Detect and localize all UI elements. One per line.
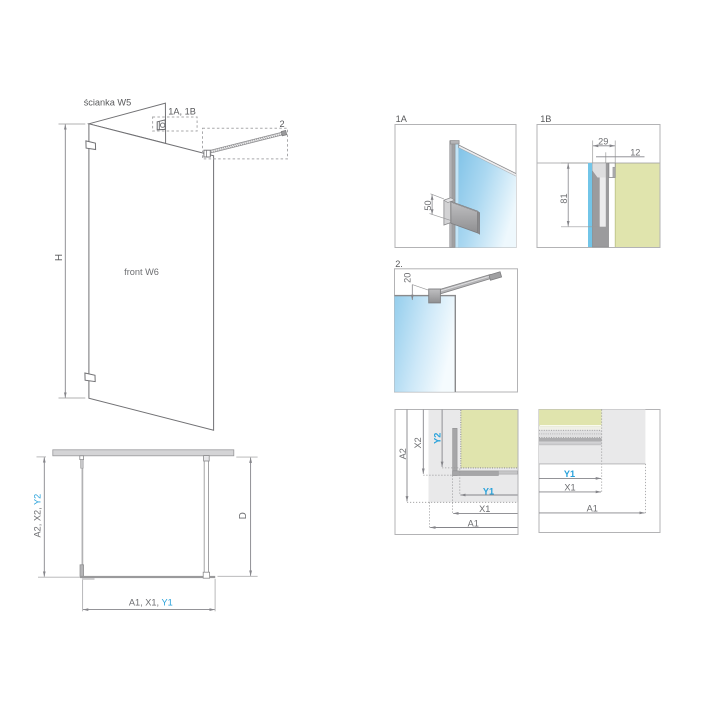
svg-text:X1: X1 [479, 504, 490, 514]
svg-text:1B: 1B [540, 114, 551, 124]
svg-text:ścianka W5: ścianka W5 [84, 98, 132, 108]
svg-text:Y2: Y2 [432, 433, 442, 444]
svg-text:A1: A1 [468, 518, 479, 528]
svg-text:Y1: Y1 [483, 486, 494, 496]
svg-text:2: 2 [280, 119, 285, 129]
svg-text:81: 81 [559, 193, 569, 203]
svg-text:A2, X2, Y2: A2, X2, Y2 [33, 494, 43, 538]
svg-text:X1: X1 [564, 483, 575, 493]
svg-text:50: 50 [423, 200, 433, 210]
svg-text:H: H [54, 254, 65, 261]
svg-text:Y1: Y1 [564, 469, 575, 479]
svg-text:D: D [238, 512, 249, 519]
svg-text:1A, 1B: 1A, 1B [168, 106, 196, 116]
svg-text:12: 12 [630, 147, 640, 157]
svg-text:20: 20 [403, 273, 413, 283]
svg-text:A1: A1 [587, 504, 598, 514]
svg-text:front W6: front W6 [124, 267, 159, 277]
svg-text:29: 29 [598, 136, 608, 146]
svg-text:2.: 2. [395, 259, 403, 269]
svg-text:A2: A2 [398, 448, 408, 459]
svg-text:1A: 1A [396, 114, 408, 124]
svg-text:A1, X1, Y1: A1, X1, Y1 [129, 598, 173, 608]
svg-text:X2: X2 [413, 437, 423, 448]
